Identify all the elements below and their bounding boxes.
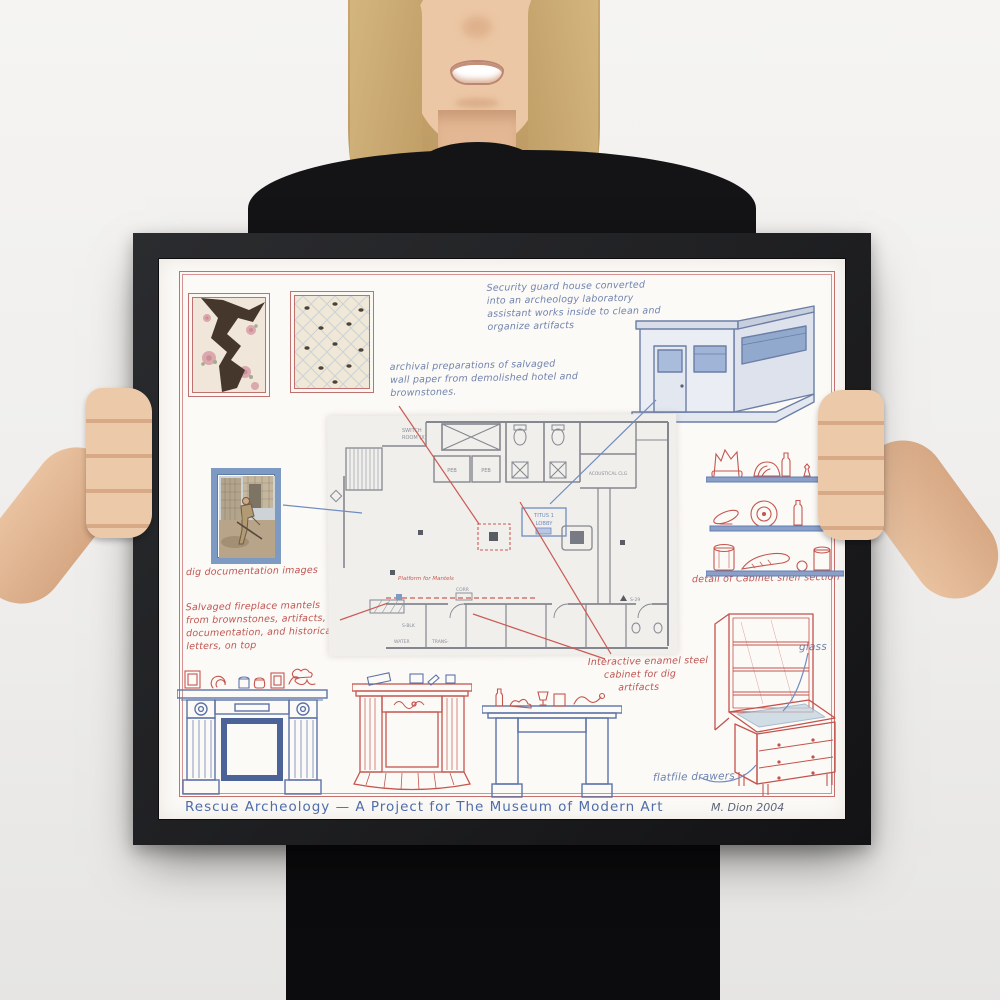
note-line: letters, on top — [186, 638, 334, 654]
artwork-paper: Security guard house converted into an a… — [159, 259, 845, 819]
mantel-simple-drawing — [482, 686, 622, 798]
plan-label-acoustics: ACOUSTICAL CLG — [589, 471, 628, 477]
wallpaper-sample-floral — [188, 293, 270, 397]
model-chin — [455, 98, 499, 108]
plan-lobby-box: TITUS 1 LOBBY — [522, 508, 566, 536]
wallpaper-sample-trellis — [290, 291, 374, 393]
mantel-red-drawing — [352, 672, 472, 797]
plan-label-corr: CORR — [456, 587, 469, 593]
guard-house-drawing — [628, 288, 818, 428]
plan-label-peb-left: PEB — [447, 468, 457, 474]
plan-label-switch-1: SWITCH — [402, 428, 422, 434]
dig-photo — [211, 468, 281, 564]
mantel-top-artifacts — [185, 669, 315, 688]
right-hand — [818, 390, 884, 540]
mantel-blue-drawing — [177, 666, 329, 796]
plan-corr-box — [456, 593, 472, 600]
note-line: Interactive enamel steel — [588, 654, 709, 669]
plan-label-peb-right: PEB — [481, 468, 491, 474]
plan-label-lobby-2: LOBBY — [536, 521, 554, 527]
artwork-title: Rescue Archeology — A Project for The Mu… — [185, 799, 664, 815]
wallpaper-floral-drawing — [193, 298, 266, 392]
model-smile — [450, 60, 504, 85]
wallpaper-trellis-drawing — [295, 296, 370, 388]
cabinet-drawing — [693, 612, 843, 797]
plan-red-dashed-box — [478, 524, 510, 550]
product-photo-scene: Security guard house converted into an a… — [0, 0, 1000, 1000]
plan-text-labels: SWITCH ROOM (X) PEB PEB ACOUSTICAL CLG C… — [394, 428, 640, 645]
plan-label-switch-2: ROOM (X) — [402, 435, 427, 441]
plan-walls — [344, 422, 668, 648]
shelf-artifacts — [712, 450, 830, 571]
note-archival: archival preparations of salvaged wall p… — [390, 357, 579, 400]
mantel-top-artifacts — [496, 689, 605, 708]
picture-frame: Security guard house converted into an a… — [133, 233, 871, 845]
plan-stairs — [346, 448, 382, 490]
artist-signature: M. Dion 2004 — [711, 801, 784, 814]
note-dig-images: dig documentation images — [186, 564, 318, 579]
left-hand — [86, 388, 152, 538]
mantel-top-artifacts — [367, 673, 455, 685]
plan-label-water: WATER — [394, 639, 410, 645]
plan-label-trans: TRANS- — [431, 639, 449, 645]
model-nose — [462, 16, 492, 38]
note-line: documentation, and historical — [186, 625, 334, 641]
plan-label-platform: Platform for Mantels — [398, 576, 454, 582]
floor-plan-drawing: TITUS 1 LOBBY SWITCH — [330, 418, 675, 653]
plan-label-lobby-1: TITUS 1 — [533, 513, 554, 519]
model-skirt — [286, 833, 720, 1000]
dig-photo-image — [219, 476, 275, 558]
plan-label-s29: S-29 — [630, 597, 640, 603]
plan-label-sblk: S-BLK — [402, 623, 416, 629]
note-salvaged-mantels: Salvaged fireplace mantels from brownsto… — [186, 599, 335, 654]
